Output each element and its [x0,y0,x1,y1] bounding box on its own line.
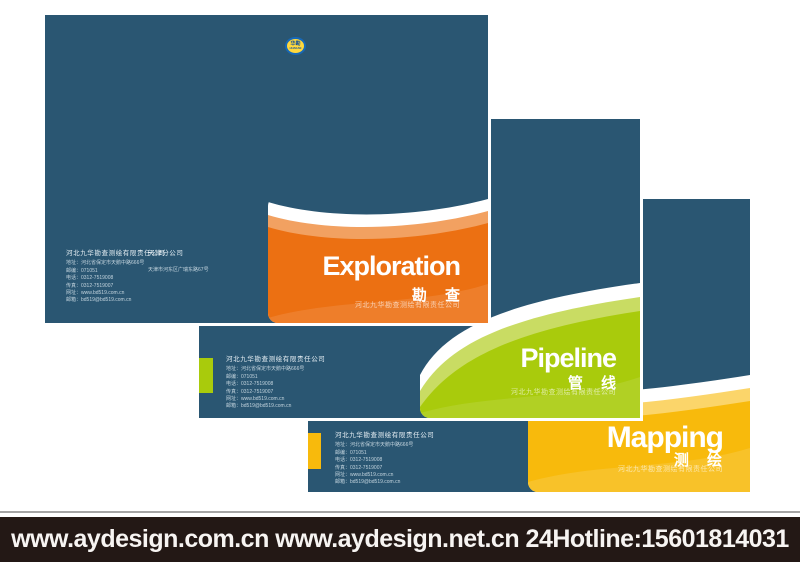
contact-block: 河北九华勘查测绘有限责任公司 地址：河北省保定市天鹅中路666号 邮编：0710… [335,432,434,487]
branch-name: 天津分公司 [148,250,209,257]
contact-line: 传真：0312-7519007 [335,465,434,472]
footer-divider [0,511,800,513]
branch-block: 天津分公司 天津市河东区广瑞东路67号 [148,250,209,275]
pipeline-side-tab [199,358,213,393]
contact-line: 邮箱：bd519@bd519.com.cn [66,297,165,304]
contact-line: 邮箱：bd519@bd519.com.cn [335,479,434,486]
exploration-cover-panel: 华勘 HUAKAN 河北九华勘查测绘有限责任公司 地址：河北省保定市天鹅中路66… [45,15,488,323]
contact-line: 地址：河北省保定市天鹅中路666号 [335,442,434,449]
mapping-side-tab [308,433,321,469]
design-showcase: 河北九华勘查测绘有限责任公司 地址：河北省保定市天鹅中路666号 邮编：0710… [0,0,800,562]
contact-block: 河北九华勘查测绘有限责任公司 地址：河北省保定市天鹅中路666号 邮编：0710… [226,356,325,411]
contact-line: 地址：河北省保定市天鹅中路666号 [226,366,325,373]
company-logo-icon: 华勘 HUAKAN [285,37,306,55]
contact-line: 传真：0312-7519007 [66,283,165,290]
company-name: 河北九华勘查测绘有限责任公司 [335,432,434,439]
contact-line: 电话：0312-7519008 [226,381,325,388]
pipeline-title: Pipeline [520,343,616,374]
exploration-title: Exploration [322,251,460,282]
contact-line: 电话：0312-7519008 [335,457,434,464]
company-name: 河北九华勘查测绘有限责任公司 [226,356,325,363]
pipeline-company-sub: 河北九华勘查测绘有限责任公司 [511,387,616,397]
mapping-company-sub: 河北九华勘查测绘有限责任公司 [618,464,723,474]
footer-contact-text: www.aydesign.com.cn www.aydesign.net.cn … [11,525,789,554]
exploration-wave-band: Exploration 勘 查 河北九华勘查测绘有限责任公司 [268,196,488,323]
contact-line: 传真：0312-7519007 [226,389,325,396]
contact-line: 邮箱：bd519@bd519.com.cn [226,403,325,410]
footer-bar: www.aydesign.com.cn www.aydesign.net.cn … [0,517,800,562]
contact-line: 电话：0312-7519008 [66,275,165,282]
branch-address: 天津市河东区广瑞东路67号 [148,267,209,274]
logo-subtext: HUAKAN [290,47,302,50]
exploration-company-sub: 河北九华勘查测绘有限责任公司 [355,300,460,310]
